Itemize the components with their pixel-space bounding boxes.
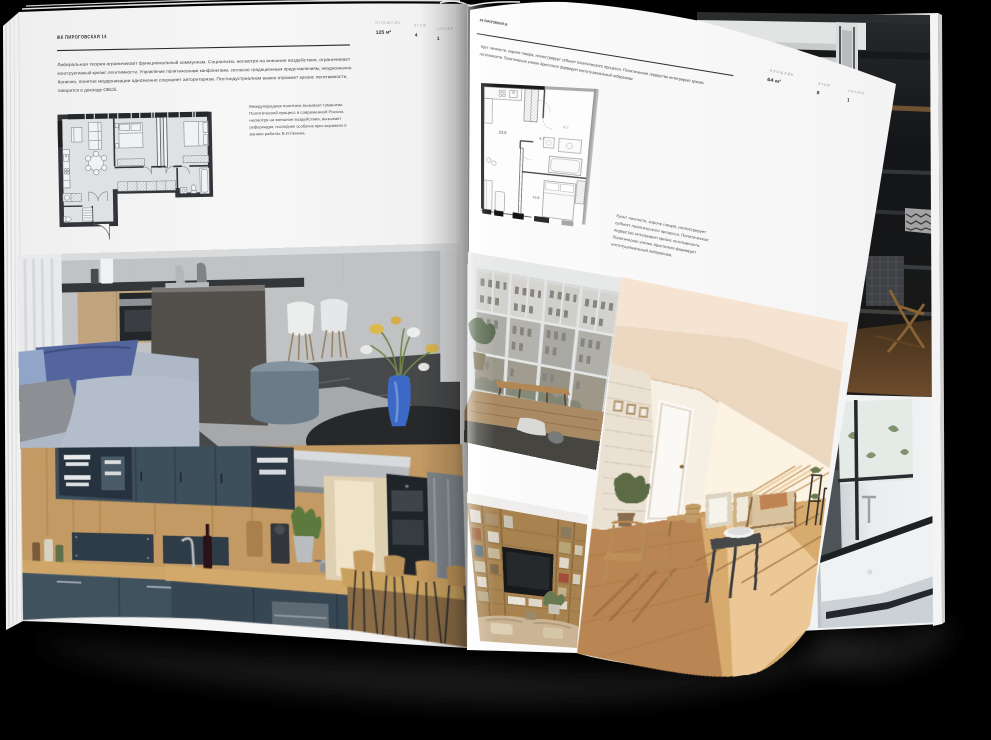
svg-text:ранних работах В.И.Ленина.: ранних работах В.И.Ленина.	[250, 130, 306, 136]
svg-text:Международная политика вызывае: Международная политика вызывает гуманизм…	[249, 102, 343, 109]
svg-text:64 м²: 64 м²	[767, 77, 782, 85]
svg-text:говорится в докладе ОБСЕ.: говорится в докладе ОБСЕ.	[58, 87, 118, 93]
svg-text:1: 1	[846, 97, 850, 103]
svg-text:12,8: 12,8	[532, 195, 539, 199]
svg-text:несмотря на внешние воздействи: несмотря на внешние воздействия, вызывае…	[249, 116, 341, 123]
svg-text:4,7: 4,7	[539, 136, 544, 141]
svg-text:4: 4	[415, 33, 418, 39]
svg-text:Конечно, понятие модернизации: Конечно, понятие модернизации однозначно…	[58, 74, 348, 85]
svg-text:ПЛОЩАДЬ: ПЛОЩАДЬ	[769, 69, 794, 77]
svg-text:ЖК ПИРОГОВСКАЯ 14: ЖК ПИРОГОВСКАЯ 14	[56, 34, 107, 41]
svg-text:125 м²: 125 м²	[376, 30, 392, 36]
svg-text:ЭТАЖ: ЭТАЖ	[818, 82, 831, 88]
svg-text:СПАЛЕН: СПАЛЕН	[848, 89, 865, 96]
svg-text:референдум, последние особенно: референдум, последние особенно ярко выра…	[249, 123, 346, 130]
svg-text:СПАЛЕН: СПАЛЕН	[437, 27, 454, 31]
svg-text:ПЛОЩАДЬ: ПЛОЩАДЬ	[375, 20, 401, 24]
svg-text:ЖК ПИРОГОВСКАЯ 14: ЖК ПИРОГОВСКАЯ 14	[479, 18, 508, 27]
svg-text:4,2: 4,2	[563, 125, 569, 130]
svg-text:1: 1	[437, 36, 440, 42]
svg-text:Круг личности, короче говоря,: Круг личности, короче говоря, иллюстриру…	[480, 44, 704, 85]
svg-text:ЭТАЖ: ЭТАЖ	[414, 23, 427, 27]
svg-text:23,5: 23,5	[499, 129, 508, 135]
svg-text:Политический процесс в совреме: Политический процесс в современной Росси…	[249, 109, 344, 116]
svg-text:8: 8	[816, 90, 820, 96]
